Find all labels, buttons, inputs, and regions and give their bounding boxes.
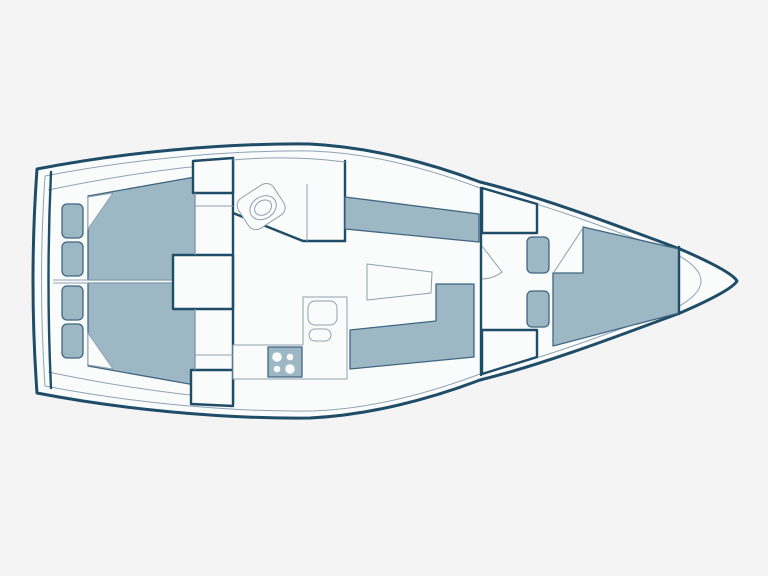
burner-small-2	[274, 366, 281, 373]
boat-floor-plan	[0, 0, 768, 576]
galley-soap-tray	[309, 329, 331, 341]
burner-small-1	[287, 354, 294, 361]
burner-large-2	[285, 364, 295, 374]
forward-cushion-1	[527, 237, 549, 273]
burner-large-1	[272, 352, 282, 362]
companionway-locker	[173, 255, 233, 309]
aft-cushion-4	[62, 324, 83, 358]
galley-stove	[268, 347, 302, 377]
aft-cushion-2	[62, 242, 83, 276]
aft-cushion-3	[62, 286, 83, 320]
bottom-mid-locker	[191, 370, 233, 406]
top-mid-locker	[193, 158, 233, 193]
aft-cushion-1	[62, 204, 83, 238]
galley-sink	[308, 301, 337, 325]
floor-plan-canvas	[0, 0, 768, 576]
forward-cushion-2	[527, 291, 549, 327]
